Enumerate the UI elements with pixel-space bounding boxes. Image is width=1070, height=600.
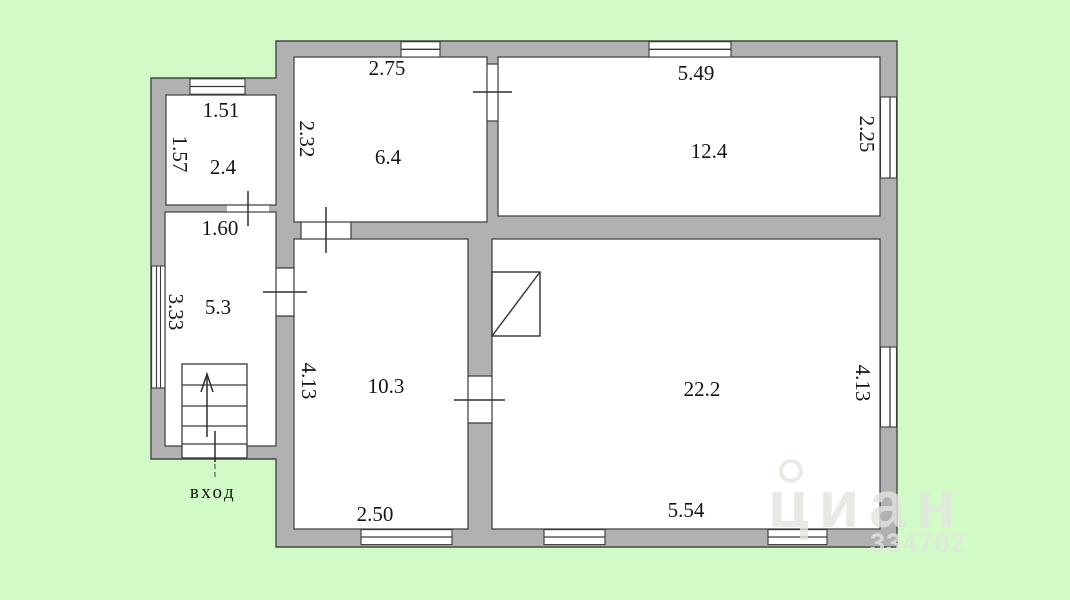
svg-text:5.3: 5.3 — [205, 295, 231, 319]
svg-text:2.25: 2.25 — [855, 116, 879, 153]
svg-text:12.4: 12.4 — [691, 139, 728, 163]
svg-text:2.4: 2.4 — [210, 155, 237, 179]
svg-text:334702: 334702 — [870, 528, 966, 558]
svg-text:22.2: 22.2 — [684, 377, 721, 401]
svg-text:6.4: 6.4 — [375, 145, 402, 169]
svg-text:4.13: 4.13 — [851, 365, 875, 402]
svg-text:2.50: 2.50 — [357, 502, 394, 526]
svg-text:10.3: 10.3 — [368, 374, 405, 398]
svg-text:5.54: 5.54 — [668, 498, 705, 522]
svg-text:1.51: 1.51 — [203, 98, 240, 122]
svg-text:вход: вход — [190, 482, 236, 503]
svg-text:2.75: 2.75 — [369, 56, 406, 80]
svg-text:3.33: 3.33 — [164, 294, 188, 331]
svg-text:1.57: 1.57 — [168, 136, 192, 173]
svg-text:5.49: 5.49 — [678, 61, 715, 85]
svg-text:2.32: 2.32 — [295, 121, 319, 158]
svg-text:4.13: 4.13 — [297, 363, 321, 400]
svg-text:1.60: 1.60 — [202, 216, 239, 240]
